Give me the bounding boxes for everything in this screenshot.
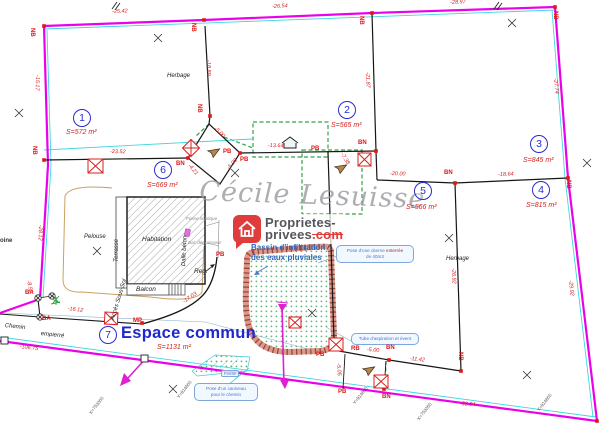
survey-marker-label: PB [338,389,346,395]
measurement-label: -21.87 [364,72,371,88]
survey-marker-label: BN [176,161,185,167]
parcel-area-7: S=1131 m² [157,344,191,351]
measurement-label: -5.05 [335,363,342,376]
survey-marker-label: PB [240,157,248,163]
measurement-label: -20.00 [390,171,406,178]
parcel-badge-5: 5 [414,182,432,200]
parcel-area-1: S=572 m² [66,129,97,136]
land-label: Habitation [142,236,171,243]
parcel-name-7: Espace commun [121,324,256,343]
logo-house-icon [233,215,261,243]
survey-marker-label: NB [31,146,37,155]
survey-marker-label: NB [29,28,35,37]
parcel-badge-2: 2 [338,101,356,119]
land-label: Herbage [446,256,469,262]
callout-citerne: Pose d'une citerne enterrée de 40m3 [336,245,414,263]
boundary-ticks [112,2,502,10]
callout-caniveau: Pose d'un caniveaupour le chemin [194,383,258,401]
logo-line2: privees.com [265,229,343,241]
measurement-label: -26.54 [272,3,288,10]
measurement-label: -26.92 [450,268,457,284]
parcel-area-6: S=669 m² [147,182,178,189]
parcel-badge-1: 1 [73,109,91,127]
measurement-label: -5.00 [367,347,380,354]
survey-marker-label: BN [444,170,453,176]
land-label: Pelouse [84,234,106,240]
land-label: Herbage [167,73,190,79]
survey-marker-label: PB [311,146,319,152]
parcel-badge-4: 4 [532,181,550,199]
survey-marker-label: PB [316,352,324,358]
measurement-label: -28.12 [37,225,43,241]
measurement-label: -13.64 [268,143,284,149]
agency-logo: Proprietes- privees.com [231,214,345,244]
measurement-label: -25.42 [112,8,128,15]
survey-marker-label: NB [358,16,364,25]
survey-marker-label: NB [565,180,571,189]
bassin-label: Bassin d'infiltrationdes eaux pluviales [251,243,325,263]
land-label: oine [0,238,12,244]
survey-marker-label: BN [382,394,391,400]
parcel-area-3: S=845 m² [523,157,554,164]
survey-marker-label: NB [552,11,558,20]
survey-marker-label: BN [358,140,367,146]
parcel-area-4: S=815 m² [526,202,557,209]
land-label: Terrasse [114,239,120,262]
survey-marker-label: RB [351,346,360,352]
house [116,197,205,295]
land-label: Reg. [194,268,208,275]
house-icon [282,137,298,148]
parcel-badge-7: 7 [99,326,117,344]
site-plan: Cécile Lesuisse Proprietes- privees.com … [0,0,600,434]
survey-marker-label: NB [190,23,196,32]
survey-marker-label: PB [223,149,231,155]
measurement-label: -27.74 [552,78,559,94]
measurement-label: -28.97 [450,0,466,6]
survey-marker-label: BA [25,290,34,296]
parcel-badge-6: 6 [154,161,172,179]
survey-marker-label: PB [216,252,224,258]
parcel-area-2: S=565 m² [331,122,362,129]
land-label: Bac dégraisseur [188,240,221,245]
callout-aspiration: Tube d'aspiration et évent [351,333,419,345]
measurement-label: -18.89 [205,60,211,76]
land-label: Fosse septique [186,216,217,221]
parcel-badge-3: 3 [530,135,548,153]
survey-marker-label: BN [386,345,395,351]
measurement-label: -18.64 [498,171,514,178]
measurement-label: -15.17 [34,75,40,91]
survey-marker-label: NB [196,104,202,113]
measurement-label: -38.84 [460,401,476,408]
parcel-area-5: S=566 m² [406,204,437,211]
survey-marker-label: BA [42,316,51,322]
stairs-icon [169,284,185,295]
measurement-label: -23.52 [110,149,126,155]
land-label: Balcon [136,286,156,293]
survey-marker-label: NB [457,352,463,361]
fosse-label: Fossé [221,370,239,377]
